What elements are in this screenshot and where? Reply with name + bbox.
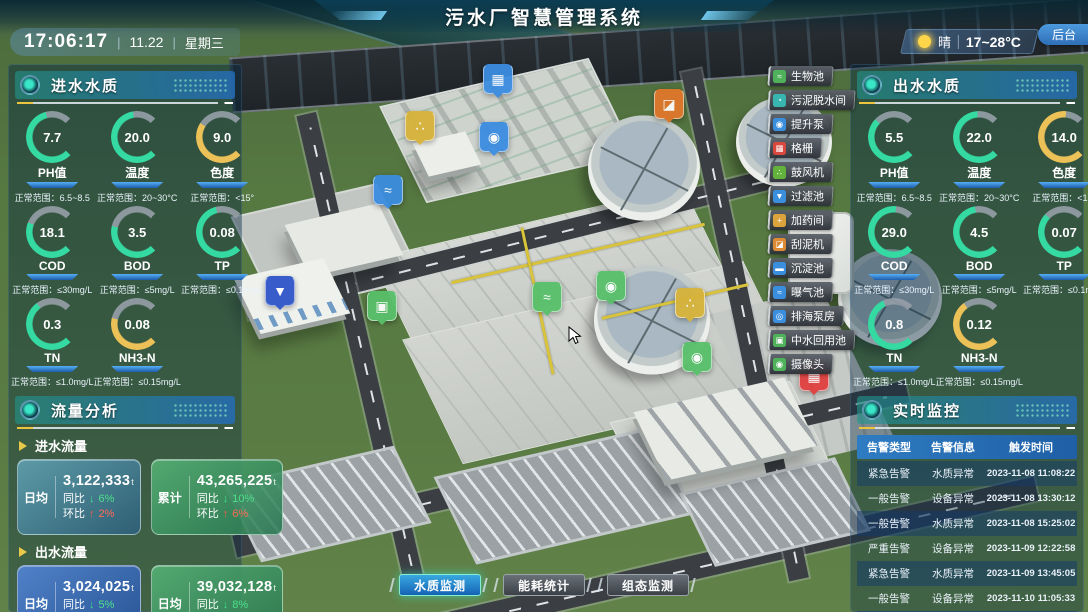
- section-header-outlet-quality: 出水水质: [857, 71, 1077, 99]
- flow-card-total: 累计 43,265,225t 同比10% 环比6%: [151, 459, 283, 535]
- section-badge-icon: [862, 75, 882, 95]
- gauge-ring-tn: 0.8: [868, 298, 920, 350]
- gauge-ring-chroma: 14.0: [1038, 111, 1088, 163]
- gauge-pedestal: [26, 366, 78, 372]
- marker-glyph: ▦: [491, 71, 504, 88]
- alarm-info: 设备异常: [921, 591, 985, 606]
- gauge-ring-bod: 4.5: [953, 206, 1005, 258]
- gauge-temperature: 22.0温度正常范围：20~30°C: [935, 111, 1022, 204]
- sun-icon: [918, 35, 931, 48]
- section-header-flow-analysis: 流量分析: [15, 396, 235, 424]
- down-arrow-icon: [223, 492, 229, 507]
- gauge-pedestal: [953, 182, 1005, 188]
- facility-button-grille[interactable]: ▦格栅: [767, 138, 822, 158]
- gauge-ph: 7.7PH值正常范围：6.5~8.5: [11, 111, 93, 204]
- gauge-label: NH3-N: [935, 351, 1022, 365]
- marker-glyph: ∴: [686, 295, 695, 312]
- flow-card-body: 39,032,128t 同比8% 环比6%: [197, 578, 276, 612]
- gauge-pedestal: [111, 274, 163, 280]
- alarm-table-body: 紧急告警水质异常2023-11-08 11:08:22一般告警设备异常2023-…: [857, 461, 1077, 612]
- yoy-value: 8%: [232, 598, 248, 612]
- gauge-range: 正常范围：<15°: [1023, 191, 1088, 204]
- alarm-row: 严重告警设备异常2023-11-09 12:22:58: [857, 536, 1077, 561]
- gauge-range: 正常范围：<15°: [181, 191, 263, 204]
- gauge-range: 正常范围：≤30mg/L: [11, 283, 93, 296]
- facility-button-reclaimed-water-pool[interactable]: ▣中水回用池: [767, 330, 855, 350]
- flow-value: 3,122,333: [63, 473, 130, 489]
- aeration-pool-icon: ≈: [773, 286, 786, 299]
- gauge-pedestal: [196, 274, 248, 280]
- flow-value: 43,265,225: [197, 473, 273, 489]
- facility-button-label: 中水回用池: [791, 332, 846, 348]
- alarm-type: 紧急告警: [857, 566, 921, 581]
- marker-blower-icon[interactable]: ∴: [405, 111, 435, 141]
- gauge-cod: 29.0COD正常范围：≤30mg/L: [853, 206, 935, 296]
- marker-filter-pool-icon[interactable]: ▼: [265, 276, 295, 306]
- gauge-label: COD: [11, 259, 93, 273]
- flow-card-daily: 日均 3,024,025t 同比5% 环比3%: [17, 565, 141, 612]
- facility-button-label: 摄像头: [791, 356, 824, 372]
- gauge-label: BOD: [93, 259, 180, 273]
- weather-widget: 晴 17~28°C: [900, 29, 1039, 54]
- gauge-label: TN: [11, 351, 93, 365]
- gauge-range: 正常范围：20~30°C: [935, 191, 1022, 204]
- flow-card-tag: 日均: [158, 582, 190, 612]
- marker-glyph: ◪: [662, 96, 675, 113]
- dots-decoration-icon: [173, 78, 229, 93]
- clock-time: 17:06:17: [24, 31, 108, 53]
- marker-camera-icon[interactable]: ◉: [596, 271, 626, 301]
- gauge-value: 29.0: [868, 206, 920, 258]
- alarm-time: 2023-11-09 12:22:58: [985, 543, 1077, 554]
- gauge-label: TP: [181, 259, 263, 273]
- gauge-value: 5.5: [868, 111, 920, 163]
- marker-glyph: ∴: [416, 118, 425, 135]
- gauge-pedestal: [26, 274, 78, 280]
- dosing-room-icon: +: [773, 214, 786, 227]
- alarm-col-info: 告警信息: [921, 439, 985, 455]
- left-panel: 进水水质 7.7PH值正常范围：6.5~8.520.0温度正常范围：20~30°…: [8, 64, 242, 612]
- gauge-pedestal: [111, 366, 163, 372]
- gauge-pedestal: [868, 182, 920, 188]
- dots-decoration-icon: [1015, 78, 1071, 93]
- alarm-row: 一般告警水质异常2023-11-08 15:25:02: [857, 511, 1077, 536]
- bio-pool-icon: ≈: [773, 70, 786, 83]
- gauge-value: 0.3: [26, 298, 78, 350]
- gauge-range: 正常范围：≤0.15mg/L: [93, 375, 180, 388]
- outlet-gauges-grid: 5.5PH值正常范围：6.5~8.522.0温度正常范围：20~30°C14.0…: [851, 104, 1083, 390]
- gauge-ring-tn: 0.3: [26, 298, 78, 350]
- alarm-row: 紧急告警水质异常2023-11-09 13:45:05: [857, 561, 1077, 586]
- gauge-ring-ph: 5.5: [868, 111, 920, 163]
- marker-mud-scraper-icon[interactable]: ◪: [654, 89, 684, 119]
- alarm-info: 设备异常: [921, 541, 985, 556]
- gauge-label: 温度: [93, 164, 180, 181]
- section-underline: [17, 427, 233, 429]
- clock-weekday: 星期三: [185, 33, 224, 52]
- yoy-value: 5%: [99, 598, 115, 612]
- gauge-range: 正常范围：≤30mg/L: [853, 283, 935, 296]
- gauge-label: 色度: [1023, 164, 1088, 181]
- tab-scada-monitor[interactable]: 组态监测: [607, 574, 689, 596]
- alarm-time: 2023-11-08 13:30:12: [985, 493, 1077, 504]
- alarm-time: 2023-11-10 11:05:33: [985, 593, 1077, 604]
- flow-value: 3,024,025: [63, 579, 130, 595]
- down-arrow-icon: [89, 492, 95, 507]
- up-arrow-icon: [223, 507, 229, 522]
- gauge-value: 14.0: [1038, 111, 1088, 163]
- facility-button-label: 曝气池: [791, 284, 824, 300]
- gauge-label: NH3-N: [93, 351, 180, 365]
- gauge-tp: 0.07TP正常范围：≤0.1mg/L: [1023, 206, 1088, 296]
- title-right-wing-decoration: [701, 11, 763, 20]
- gauge-bod: 3.5BOD正常范围：≤5mg/L: [93, 206, 180, 296]
- flow-unit: t: [131, 477, 134, 487]
- gauge-ring-tp: 0.07: [1038, 206, 1088, 258]
- weather-condition: 晴: [938, 32, 951, 51]
- flow-card-tag: 日均: [24, 582, 56, 612]
- gauge-nh3n: 0.12NH3-N正常范围：≤0.15mg/L: [935, 298, 1022, 388]
- marker-glyph: ≈: [384, 182, 392, 198]
- inlet-flow-cards: 日均 3,122,333t 同比6% 环比2% 累计 43,265,225t 同…: [9, 459, 241, 535]
- facility-button-sedimentation-pool[interactable]: ▬沉淀池: [767, 258, 833, 278]
- gauge-ring-bod: 3.5: [111, 206, 163, 258]
- alarm-table-header: 告警类型 告警信息 触发时间: [857, 435, 1077, 459]
- sludge-dewatering-room-icon: ◔: [773, 94, 786, 107]
- facility-button-sludge-dewatering-room[interactable]: ◔污泥脱水间: [767, 90, 855, 110]
- title-left-wing-decoration: [325, 11, 387, 20]
- gauge-pedestal: [868, 274, 920, 280]
- facility-button-aeration-pool[interactable]: ≈曝气池: [767, 282, 833, 302]
- gauge-bod: 4.5BOD正常范围：≤5mg/L: [935, 206, 1022, 296]
- alarm-info: 水质异常: [921, 466, 985, 481]
- filter-pool-icon: ▼: [773, 190, 786, 203]
- facility-button-bio-pool[interactable]: ≈生物池: [767, 66, 833, 86]
- facility-button-sea-discharge-pump-house[interactable]: ◎排海泵房: [767, 306, 844, 326]
- gauge-range: 正常范围：20~30°C: [93, 191, 180, 204]
- marker-sedimentation-icon[interactable]: ▦: [483, 64, 513, 94]
- section-badge-icon: [862, 400, 882, 420]
- triangle-bullet-icon: [19, 547, 32, 557]
- flow-card-tag: 累计: [158, 476, 190, 518]
- section-title: 流量分析: [51, 400, 119, 421]
- gauge-pedestal: [26, 182, 78, 188]
- facility-button-camera[interactable]: ◉摄像头: [767, 354, 833, 374]
- gauge-pedestal: [196, 182, 248, 188]
- gauge-range: 正常范围：6.5~8.5: [853, 191, 935, 204]
- flow-label-text: 进水流量: [35, 436, 87, 455]
- section-header-realtime-monitoring: 实时监控: [857, 396, 1077, 424]
- gauge-ring-ph: 7.7: [26, 111, 78, 163]
- gauge-range: 正常范围：≤0.1mg/L: [1023, 283, 1088, 296]
- facility-button-list: ≈生物池◔污泥脱水间◉提升泵▦格栅∴鼓风机▼过滤池+加药间◪刮泥机▬沉淀池≈曝气…: [768, 66, 855, 374]
- triangle-bullet-icon: [19, 441, 32, 451]
- gauge-value: 0.08: [196, 206, 248, 258]
- up-arrow-icon: [89, 507, 95, 522]
- outlet-flow-label: 出水流量: [19, 542, 231, 561]
- gauge-ring-temperature: 22.0: [953, 111, 1005, 163]
- gauge-label: BOD: [935, 259, 1022, 273]
- flow-value: 39,032,128: [197, 579, 273, 595]
- gauge-label: TN: [853, 351, 935, 365]
- facility-button-label: 加药间: [791, 212, 824, 228]
- gauge-pedestal: [953, 366, 1005, 372]
- gauge-chroma: 9.0色度正常范围：<15°: [181, 111, 263, 204]
- facility-button-mud-scraper[interactable]: ◪刮泥机: [767, 234, 833, 254]
- weather-temp-range: 17~28°C: [966, 34, 1021, 50]
- gauge-value: 20.0: [111, 111, 163, 163]
- section-header-inlet-quality: 进水水质: [15, 71, 235, 99]
- alarm-info: 水质异常: [921, 566, 985, 581]
- gauge-value: 3.5: [111, 206, 163, 258]
- facility-button-label: 刮泥机: [791, 236, 824, 252]
- facility-button-label: 生物池: [791, 68, 824, 84]
- clock-date: 11.22: [129, 34, 163, 50]
- gauge-ring-cod: 18.1: [26, 206, 78, 258]
- gauge-value: 18.1: [26, 206, 78, 258]
- dots-decoration-icon: [173, 403, 229, 418]
- gauge-temperature: 20.0温度正常范围：20~30°C: [93, 111, 180, 204]
- yoy-label: 同比: [63, 598, 85, 612]
- gauge-range: 正常范围：≤1.0mg/L: [11, 375, 93, 388]
- yoy-value: 6%: [99, 492, 115, 507]
- gauge-tn: 0.3TN正常范围：≤1.0mg/L: [11, 298, 93, 388]
- marker-glyph: ◉: [605, 278, 617, 295]
- flow-label-text: 出水流量: [35, 542, 87, 561]
- gauge-label: 温度: [935, 164, 1022, 181]
- marker-glyph: ▣: [375, 298, 388, 315]
- alarm-col-time: 触发时间: [985, 439, 1077, 455]
- facility-button-dosing-room[interactable]: +加药间: [767, 210, 833, 230]
- yoy-label: 同比: [197, 492, 219, 507]
- alarm-col-type: 告警类型: [857, 439, 921, 455]
- marker-lift-pump-icon[interactable]: ◉: [479, 122, 509, 152]
- inlet-flow-label: 进水流量: [19, 436, 231, 455]
- alarm-type: 紧急告警: [857, 466, 921, 481]
- section-underline: [859, 427, 1075, 429]
- gauge-tn: 0.8TN正常范围：≤1.0mg/L: [853, 298, 935, 388]
- marker-bio-pool-icon[interactable]: ≈: [532, 282, 562, 312]
- blower-icon: ∴: [773, 166, 786, 179]
- gauge-value: 0.12: [953, 298, 1005, 350]
- alarm-info: 水质异常: [921, 516, 985, 531]
- mom-label: 环比: [63, 507, 85, 522]
- marker-glyph: ≈: [543, 289, 551, 305]
- clarifier-tank: [588, 115, 700, 220]
- mud-scraper-icon: ◪: [773, 238, 786, 251]
- page-title: 污水厂智慧管理系统: [445, 3, 643, 30]
- gauge-pedestal: [1038, 274, 1088, 280]
- sedimentation-pool-icon: ▬: [773, 262, 786, 275]
- gauge-ring-chroma: 9.0: [196, 111, 248, 163]
- right-panel: 出水水质 5.5PH值正常范围：6.5~8.522.0温度正常范围：20~30°…: [850, 64, 1084, 612]
- gauge-range: 正常范围：≤0.1mg/L: [181, 283, 263, 296]
- alarm-row: 一般告警设备异常2023-11-08 13:30:12: [857, 486, 1077, 511]
- alarm-time: 2023-11-08 15:25:02: [985, 518, 1077, 529]
- section-title: 实时监控: [893, 400, 961, 421]
- inlet-gauges-grid: 7.7PH值正常范围：6.5~8.520.0温度正常范围：20~30°C9.0色…: [9, 104, 241, 390]
- gauge-pedestal: [1038, 182, 1088, 188]
- flow-card-daily-2: 日均 39,032,128t 同比8% 环比6%: [151, 565, 283, 612]
- flow-card-body: 3,122,333t 同比6% 环比2%: [63, 472, 134, 522]
- alarm-row: 紧急告警水质异常2023-11-08 11:08:22: [857, 461, 1077, 486]
- gauge-nh3n: 0.08NH3-N正常范围：≤0.15mg/L: [93, 298, 180, 388]
- marker-glyph: ◉: [691, 349, 703, 366]
- gauge-tp: 0.08TP正常范围：≤0.1mg/L: [181, 206, 263, 296]
- yoy-value: 10%: [232, 492, 254, 507]
- mouse-cursor: [568, 326, 582, 346]
- section-badge-icon: [20, 400, 40, 420]
- section-title: 出水水质: [893, 75, 961, 96]
- facility-button-filter-pool[interactable]: ▼过滤池: [767, 186, 833, 206]
- alarm-time: 2023-11-08 11:08:22: [985, 468, 1077, 479]
- gauge-range: 正常范围：6.5~8.5: [11, 191, 93, 204]
- section-title: 进水水质: [51, 75, 119, 96]
- gauge-value: 0.08: [111, 298, 163, 350]
- facility-button-label: 污泥脱水间: [791, 92, 846, 108]
- flow-card-daily: 日均 3,122,333t 同比6% 环比2%: [17, 459, 141, 535]
- flow-card-tag: 日均: [24, 476, 56, 518]
- gauge-pedestal: [953, 274, 1005, 280]
- gauge-range: 正常范围：≤5mg/L: [93, 283, 180, 296]
- alarm-row: 一般告警设备异常2023-11-10 11:05:33: [857, 586, 1077, 611]
- tab-energy-statistics[interactable]: 能耗统计: [503, 574, 585, 596]
- marker-glyph: ◉: [488, 129, 500, 146]
- marker-blower-icon[interactable]: ∴: [675, 288, 705, 318]
- tab-water-quality-monitor[interactable]: 水质监测: [399, 574, 481, 596]
- gauge-ph: 5.5PH值正常范围：6.5~8.5: [853, 111, 935, 204]
- reclaimed-water-pool-icon: ▣: [773, 334, 786, 347]
- marker-camera-icon[interactable]: ◉: [682, 342, 712, 372]
- flow-unit: t: [273, 477, 276, 487]
- yoy-label: 同比: [197, 598, 219, 612]
- flow-card-body: 43,265,225t 同比10% 环比6%: [197, 472, 276, 522]
- gauge-value: 0.07: [1038, 206, 1088, 258]
- alarm-time: 2023-11-09 13:45:05: [985, 568, 1077, 579]
- alarm-type: 严重告警: [857, 541, 921, 556]
- sea-discharge-pump-house-icon: ◎: [773, 310, 786, 323]
- gauge-ring-nh3n: 0.12: [953, 298, 1005, 350]
- gauge-label: PH值: [11, 164, 93, 181]
- dots-decoration-icon: [1015, 403, 1071, 418]
- flow-unit: t: [131, 583, 134, 593]
- marker-aeration-pool-icon[interactable]: ≈: [373, 175, 403, 205]
- flow-unit: t: [273, 583, 276, 593]
- gauge-range: 正常范围：≤5mg/L: [935, 283, 1022, 296]
- facility-button-label: 格栅: [791, 140, 813, 156]
- mom-label: 环比: [197, 507, 219, 522]
- gauge-range: 正常范围：≤0.15mg/L: [935, 375, 1022, 388]
- gauge-label: PH值: [853, 164, 935, 181]
- outlet-flow-cards: 日均 3,024,025t 同比5% 环比3% 日均 39,032,128t 同…: [9, 565, 241, 612]
- clock-widget: 17:06:17 | 11.22 | 星期三: [10, 28, 240, 56]
- alarm-info: 设备异常: [921, 491, 985, 506]
- gauge-chroma: 14.0色度正常范围：<15°: [1023, 111, 1088, 204]
- gauge-label: TP: [1023, 259, 1088, 273]
- gauge-ring-nh3n: 0.08: [111, 298, 163, 350]
- gauge-pedestal: [111, 182, 163, 188]
- backend-button[interactable]: 后台: [1038, 24, 1088, 45]
- gauge-pedestal: [868, 366, 920, 372]
- facility-button-label: 提升泵: [791, 116, 824, 132]
- gauge-ring-tp: 0.08: [196, 206, 248, 258]
- gauge-label: COD: [853, 259, 935, 273]
- gauge-value: 9.0: [196, 111, 248, 163]
- gauge-ring-temperature: 20.0: [111, 111, 163, 163]
- gauge-ring-cod: 29.0: [868, 206, 920, 258]
- down-arrow-icon: [223, 598, 229, 612]
- gauge-value: 4.5: [953, 206, 1005, 258]
- camera-icon: ◉: [773, 358, 786, 371]
- marker-glyph: ▼: [273, 283, 287, 299]
- down-arrow-icon: [89, 598, 95, 612]
- marker-reclaimed-water-pool-icon[interactable]: ▣: [367, 291, 397, 321]
- divider: |: [172, 35, 175, 50]
- yoy-label: 同比: [63, 492, 85, 507]
- facility-button-label: 沉淀池: [791, 260, 824, 276]
- facility-button-label: 过滤池: [791, 188, 824, 204]
- flow-card-body: 3,024,025t 同比5% 环比3%: [63, 578, 134, 612]
- facility-button-label: 排海泵房: [791, 308, 835, 324]
- app-root: ▦∴◉◪≈▼▣≈◉∴◉▦ 污水厂智慧管理系统 17:06:17 | 11.22 …: [0, 0, 1088, 612]
- mom-value: 6%: [232, 507, 248, 522]
- alarm-type: 一般告警: [857, 591, 921, 606]
- gauge-label: 色度: [181, 164, 263, 181]
- lift-pump-icon: ◉: [773, 118, 786, 131]
- facility-button-lift-pump[interactable]: ◉提升泵: [767, 114, 833, 134]
- facility-button-blower[interactable]: ∴鼓风机: [767, 162, 833, 182]
- facility-button-label: 鼓风机: [791, 164, 824, 180]
- divider: |: [117, 35, 120, 50]
- bottom-tab-bar: 水质监测 能耗统计 组态监测: [399, 574, 689, 596]
- alarm-type: 一般告警: [857, 516, 921, 531]
- gauge-value: 0.8: [868, 298, 920, 350]
- gauge-range: 正常范围：≤1.0mg/L: [853, 375, 935, 388]
- divider: [958, 35, 959, 49]
- section-badge-icon: [20, 75, 40, 95]
- grille-icon: ▦: [773, 142, 786, 155]
- gauge-value: 22.0: [953, 111, 1005, 163]
- title-plate: 污水厂智慧管理系统: [314, 0, 774, 32]
- gauge-cod: 18.1COD正常范围：≤30mg/L: [11, 206, 93, 296]
- gauge-value: 7.7: [26, 111, 78, 163]
- alarm-type: 一般告警: [857, 491, 921, 506]
- mom-value: 2%: [99, 507, 115, 522]
